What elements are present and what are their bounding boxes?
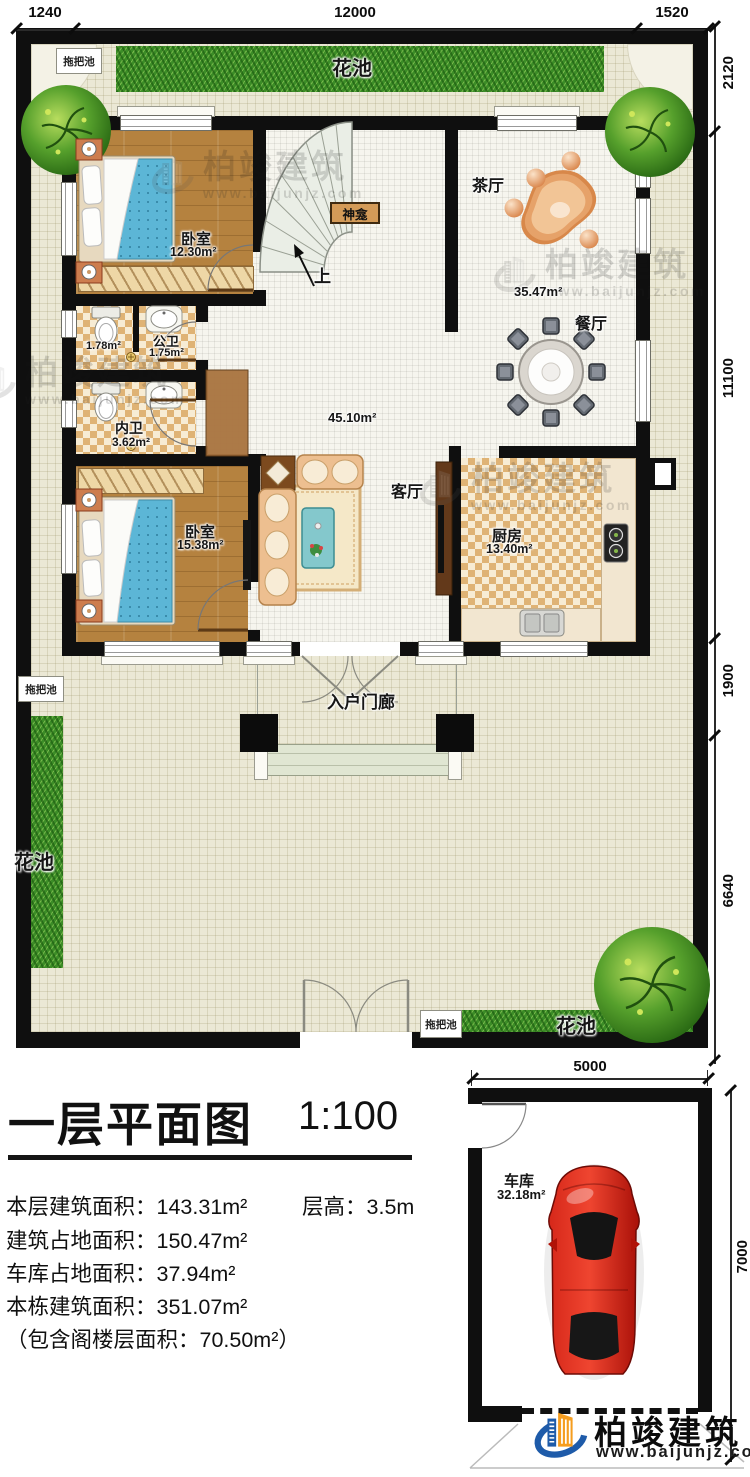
title-underline — [8, 1155, 412, 1160]
brand-logo-icon — [0, 359, 18, 405]
brand-url: www.baijunjz.com — [596, 1443, 750, 1462]
wardrobe — [78, 266, 254, 292]
area-private-bath: 3.62m² — [112, 435, 150, 449]
stat-value: 150.47m² — [157, 1229, 248, 1253]
dim-right-1: 2120 — [720, 56, 737, 89]
area-kitchen: 13.40m² — [486, 542, 533, 556]
garage-wall-right — [698, 1088, 712, 1412]
stat-value: 3.5m — [367, 1195, 415, 1219]
stat-label: 本层建筑面积： — [6, 1195, 157, 1219]
porch-line — [257, 658, 258, 716]
window-sill — [101, 656, 223, 665]
dim-line-top — [16, 29, 708, 31]
watermark-url: www.baijunjz.com — [25, 391, 186, 407]
mop-pool: 拖把池 — [18, 676, 64, 702]
window — [635, 134, 651, 188]
porch-step — [264, 744, 450, 776]
stat-label: 建筑占地面积： — [6, 1229, 157, 1253]
stat-floor-area: 本层建筑面积：143.31m² — [6, 1190, 247, 1221]
stat-label: 车库占地面积： — [6, 1262, 157, 1286]
wall-bath-top — [62, 294, 266, 306]
room-label-porch: 入户门廊 — [327, 688, 395, 713]
window-sill — [243, 656, 295, 665]
brand-logo-icon — [150, 153, 196, 199]
wall-bedroom-living — [248, 454, 260, 582]
dim-right-4: 6640 — [720, 874, 737, 907]
garage-wall-left — [468, 1148, 482, 1410]
area-garage: 32.18m² — [497, 1187, 545, 1202]
stat-garage-footprint: 车库占地面积：37.94m² — [6, 1257, 235, 1288]
area-bedroom-upper: 12.30m² — [170, 245, 217, 259]
shrine: 神龛 — [330, 202, 380, 224]
flower-bed-label: 花池 — [556, 1010, 596, 1039]
dim-line-right — [714, 26, 716, 1064]
room-label-dining: 餐厅 — [575, 310, 607, 334]
area-public-bath: 1.75m² — [149, 347, 184, 359]
window-sill — [415, 656, 467, 665]
watermark-name: 柏竣建筑 — [545, 248, 706, 281]
garage-wall-top — [468, 1088, 712, 1102]
porch-pillar — [240, 714, 278, 752]
dim-top-mid: 12000 — [305, 4, 405, 21]
wall-bath-right — [196, 294, 208, 322]
page-title: 一层平面图 — [8, 1086, 253, 1155]
yard-wall-right — [693, 28, 708, 1048]
area-toilet-stall: 1.78m² — [86, 340, 121, 352]
car — [544, 1164, 644, 1380]
area-living: 45.10m² — [328, 410, 376, 425]
dim-right-2: 11100 — [720, 358, 737, 398]
window — [418, 641, 464, 657]
stat-value: 143.31m² — [157, 1195, 248, 1219]
window — [61, 182, 77, 256]
stat-building-total: 本栋建筑面积：351.07m² — [6, 1290, 247, 1321]
flower-bed-left — [31, 716, 63, 968]
stairs-up-label: 上 — [314, 262, 331, 287]
watermark: 柏竣建筑 www.baijunjz.com — [150, 150, 364, 201]
watermark-url: www.baijunjz.com — [545, 283, 706, 299]
garage-wall-left — [468, 1088, 482, 1104]
stat-label: 本栋建筑面积： — [6, 1295, 157, 1319]
stat-value: 351.07m² — [157, 1295, 248, 1319]
dim-right-3: 1900 — [720, 664, 737, 697]
window — [61, 504, 77, 574]
brand-logo-icon — [532, 1406, 590, 1464]
entry-door-opening — [300, 642, 400, 656]
room-label-living: 客厅 — [391, 478, 423, 502]
window — [104, 641, 220, 657]
kitchen-counter-bottom — [461, 608, 601, 642]
wardrobe — [78, 468, 204, 494]
dim-garage-depth: 7000 — [734, 1240, 750, 1273]
plan-scale: 1:100 — [298, 1094, 398, 1139]
watermark: 柏竣建筑 www.baijunjz.com — [418, 462, 632, 513]
porch-line — [456, 658, 457, 716]
window — [120, 115, 212, 131]
wall-dining-kitchen — [499, 446, 650, 458]
mop-pool: 拖把池 — [420, 1010, 462, 1038]
stat-height: 层高：3.5m — [302, 1190, 414, 1221]
stat-attic-note: （包含阁楼层面积：70.50m²） — [6, 1323, 300, 1354]
window — [635, 340, 651, 422]
watermark-name: 柏竣建筑 — [471, 462, 632, 495]
brand-logo-icon — [418, 465, 464, 511]
kitchen-flue — [650, 458, 676, 490]
watermark-url: www.baijunjz.com — [471, 497, 632, 513]
dim-line-garage-top — [472, 1078, 708, 1080]
dim-top-right: 1520 — [642, 4, 702, 21]
stat-footprint: 建筑占地面积：150.47m² — [6, 1224, 247, 1255]
watermark-url: www.baijunjz.com — [203, 185, 364, 201]
stat-label: 层高： — [302, 1195, 367, 1219]
yard-wall-left — [16, 28, 31, 1048]
window — [246, 641, 292, 657]
room-label-tea-hall: 茶厅 — [472, 172, 504, 196]
dim-garage-width: 5000 — [555, 1058, 625, 1075]
flower-bed-label: 花池 — [332, 52, 372, 81]
floor-plan-canvas: 1240 12000 1520 2120 11100 1900 6640 花池 … — [0, 0, 750, 1477]
area-bedroom-lower: 15.38m² — [177, 538, 224, 552]
wall-hall-tea — [445, 116, 458, 332]
flower-bed-label: 花池 — [14, 846, 54, 875]
window — [61, 310, 77, 338]
wall-bath-bottom — [62, 454, 266, 466]
watermark: 柏竣建筑 www.baijunjz.com — [0, 356, 186, 407]
yard-gate-opening — [300, 1032, 412, 1048]
mop-pool: 拖把池 — [56, 48, 102, 74]
watermark-name: 柏竣建筑 — [25, 356, 186, 389]
wall-toilet-divider — [133, 306, 139, 352]
area-dining: 35.47m² — [514, 284, 562, 299]
stat-value: 37.94m² — [157, 1262, 236, 1286]
watermark-name: 柏竣建筑 — [203, 150, 364, 183]
garden-basin — [60, 112, 88, 136]
porch-pillar — [436, 714, 474, 752]
dim-top-left: 1240 — [20, 4, 70, 21]
garage-wall-bottom — [468, 1406, 522, 1422]
window — [500, 641, 588, 657]
window — [497, 115, 577, 131]
